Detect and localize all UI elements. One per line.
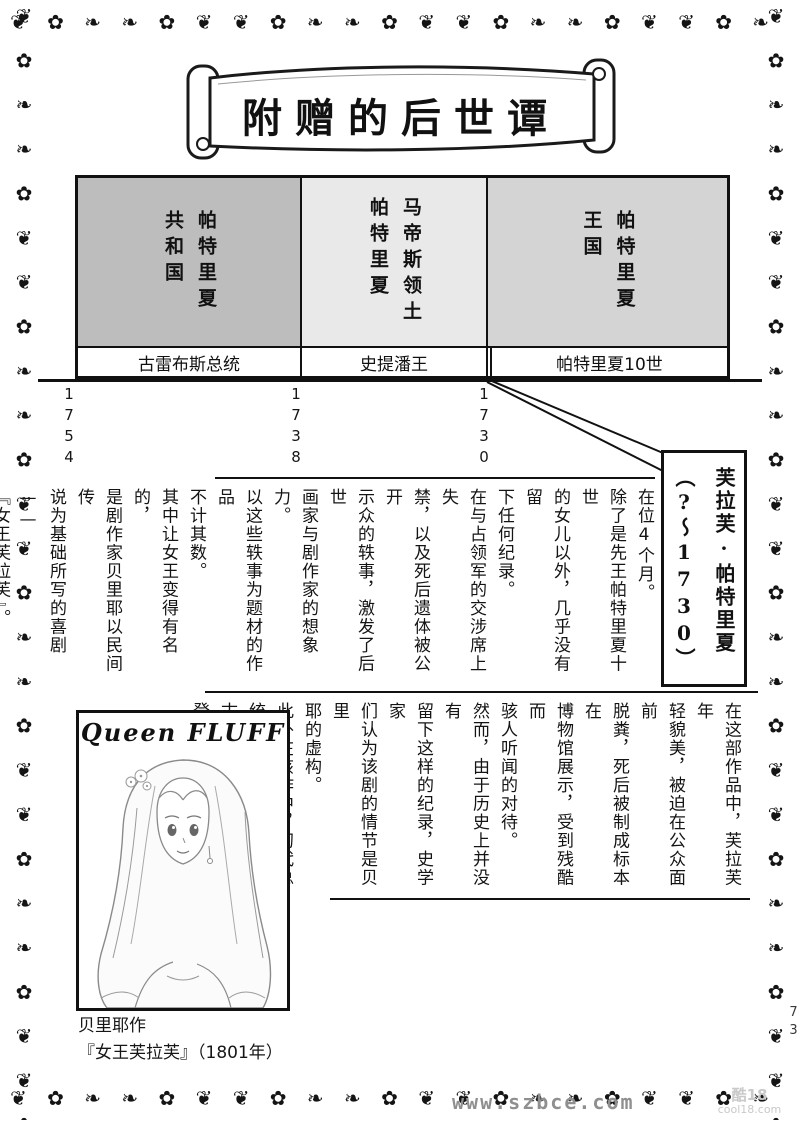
- section-rule-bottom: [330, 898, 750, 900]
- ruler-name: 帕特里夏10世: [556, 350, 663, 375]
- era-cell-kingdom: 帕特里夏 王国: [486, 178, 727, 346]
- bio-paragraph: 在位4个月。 除了是先王帕特里夏十世 的女儿以外，几乎没有留 下任何纪录。: [490, 488, 658, 690]
- biography-text: 在位4个月。 除了是先王帕特里夏十世 的女儿以外，几乎没有留 下任何纪录。 在与…: [215, 488, 658, 690]
- watermark-logo-line1: 酷18: [702, 1087, 797, 1103]
- play-paragraph: 然而，由于历史上并没有 留下这样的纪录，史学家 们认为该剧的情节是贝里 耶的虚构…: [297, 702, 493, 900]
- vine-border-top-icon: ❦ ✿ ❧ ❧ ✿ ❦ ❦ ✿ ❧ ❧ ✿ ❦ ❦ ✿ ❧ ❧ ✿ ❦ ❦ ✿ …: [10, 4, 790, 42]
- illustration-caption: 贝里耶作 『女王芙拉芙』（1801年）: [78, 1013, 318, 1067]
- vine-border-bottom-icon: ❦ ✿ ❧ ❧ ✿ ❦ ❦ ✿ ❧ ❧ ✿ ❦ ❦ ✿ ❧ ❧ ✿ ❦ ❦ ✿ …: [10, 1080, 790, 1120]
- era-name: 帕特里夏 共和国: [156, 210, 222, 314]
- section-rule-top: [215, 477, 655, 479]
- ruler-cell: 帕特里夏10世: [486, 348, 727, 376]
- page-title: 附赠的后世谭: [148, 86, 654, 144]
- bio-paragraph: 在与占领军的交涉席上失 禁，以及死后遗体被公开 示众的轶事，激发了后世 画家与剧…: [182, 488, 490, 690]
- era-cell-republic: 帕特里夏 共和国: [78, 178, 300, 346]
- ruler-row: 古雷布斯总统 史提潘王 帕特里夏10世: [78, 346, 727, 376]
- manga-afterword-page: ❦ ✿ ❧ ❧ ✿ ❦ ❦ ✿ ❧ ❧ ✿ ❦ ❦ ✿ ❧ ❧ ✿ ❦ ❦ ✿ …: [0, 0, 800, 1129]
- ruler-cell: 古雷布斯总统: [78, 348, 300, 376]
- queen-portrait-illustration: [79, 746, 287, 1008]
- play-description-text: 在这部作品中，芙拉芙年 轻貌美，被迫在公众面前 脱粪，死后被制成标本在 博物馆展…: [300, 702, 745, 900]
- ruler-name: 古雷布斯总统: [138, 350, 240, 375]
- queen-name-callout: 芙拉芙·帕特里夏 （?～1730）: [661, 450, 747, 687]
- queen-fluff-illustration-box: Queen FLUFF: [76, 710, 290, 1011]
- vine-border-right-icon: ❦ ✿ ❧ ❧ ✿ ❦ ❦ ✿ ❧ ❧ ✿ ❦ ❦ ✿ ❧ ❧ ✿ ❦ ❦ ✿ …: [758, 4, 794, 1120]
- era-cell-territory: 马帝斯领土 帕特里夏: [300, 178, 486, 346]
- era-name: 马帝斯领土 帕特里夏: [361, 197, 427, 327]
- play-paragraph: 在这部作品中，芙拉芙年 轻貌美，被迫在公众面前 脱粪，死后被制成标本在 博物馆展…: [493, 702, 745, 900]
- year-label-1754: 1754: [60, 385, 78, 469]
- watermark-logo: 酷18 cool18.com: [702, 1087, 797, 1116]
- watermark-url: www.szbce.com: [452, 1090, 635, 1114]
- ruler-cell: 史提潘王: [300, 348, 486, 376]
- year-label-1738: 1738: [287, 385, 305, 469]
- title-banner: 附赠的后世谭: [148, 56, 654, 162]
- watermark-logo-line2: cool18.com: [702, 1103, 797, 1116]
- caption-author: 贝里耶作: [78, 1013, 318, 1040]
- era-name: 帕特里夏 王国: [575, 210, 641, 314]
- section-rule-middle: [205, 691, 758, 693]
- caption-work: 『女王芙拉芙』（1801年）: [78, 1040, 318, 1067]
- bio-paragraph: 其中让女王变得有名的， 是剧作家贝里耶以民间传 说为基础所写的喜剧—— 『女王芙…: [0, 488, 182, 690]
- queen-name-label: 芙拉芙·帕特里夏 （?～1730）: [664, 467, 744, 671]
- era-header-row: 帕特里夏 共和国 马帝斯领土 帕特里夏 帕特里夏 王国: [78, 178, 727, 346]
- illustration-title: Queen FLUFF: [79, 718, 287, 747]
- timeline-axis-line: [38, 379, 762, 382]
- year-label-1730: 1730: [475, 385, 493, 469]
- era-timeline-table: 帕特里夏 共和国 马帝斯领土 帕特里夏 帕特里夏 王国 古雷布斯总统 史提潘王 …: [75, 175, 730, 379]
- ruler-name: 史提潘王: [360, 350, 428, 375]
- page-number: 73: [786, 1005, 800, 1041]
